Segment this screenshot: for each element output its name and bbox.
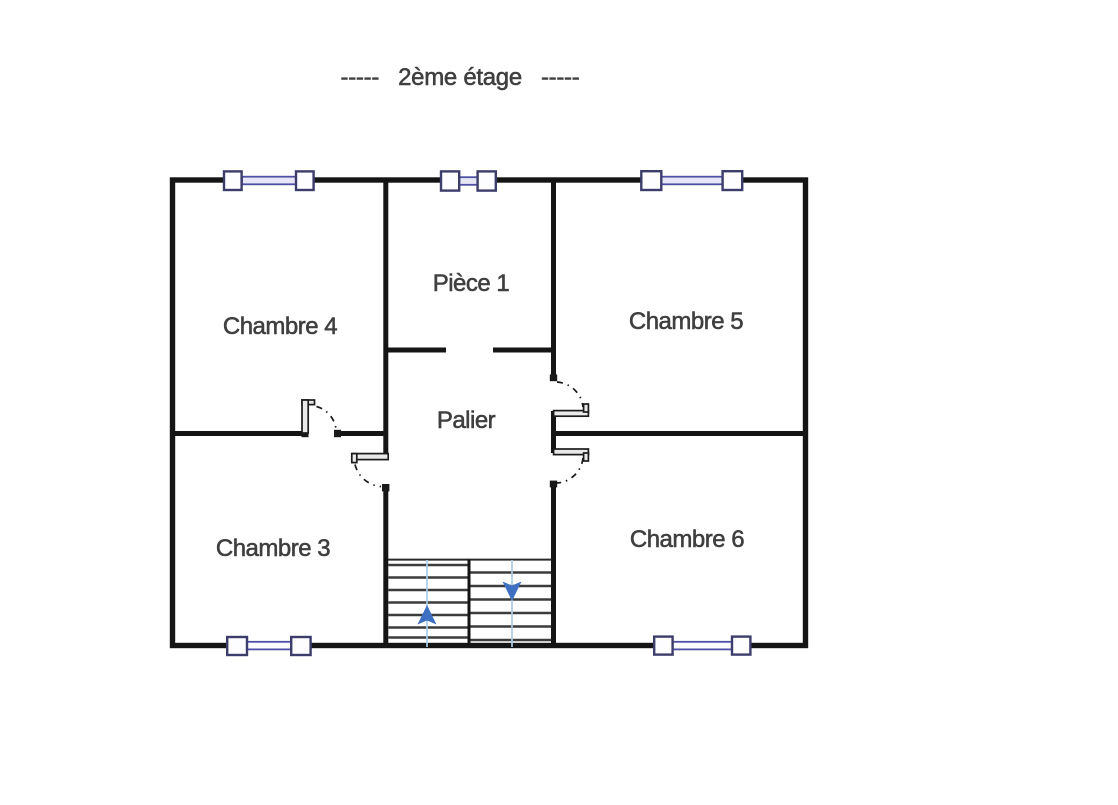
- svg-text:Pièce 1: Pièce 1: [433, 270, 510, 297]
- svg-text:Chambre 3: Chambre 3: [216, 535, 330, 562]
- svg-text:Chambre 6: Chambre 6: [630, 526, 744, 553]
- svg-text:Chambre 5: Chambre 5: [629, 308, 743, 335]
- svg-text:----- 2ème étage -----: ----- 2ème étage -----: [341, 64, 580, 91]
- svg-text:Palier: Palier: [437, 407, 496, 434]
- svg-text:Chambre 4: Chambre 4: [223, 313, 337, 340]
